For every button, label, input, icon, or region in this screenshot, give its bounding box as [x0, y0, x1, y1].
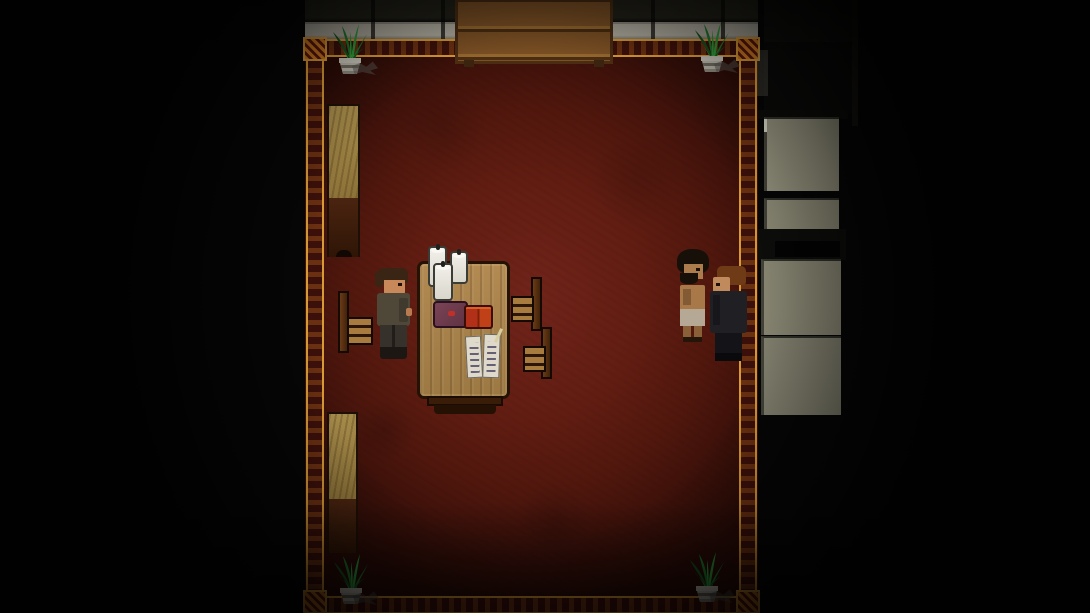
chair-left-seat[interactable] [347, 317, 373, 345]
shelf-board [458, 54, 610, 60]
room-border-left [306, 39, 324, 613]
bookshelf-row-upper [462, 3, 606, 26]
wall-cabinet-upper[interactable] [327, 104, 360, 257]
npc-waist-cloth [680, 309, 705, 326]
player-character[interactable] [375, 268, 413, 360]
shelf-leg [464, 60, 474, 67]
chair-right-lower-seat[interactable] [523, 346, 546, 372]
red-tome-pair[interactable] [464, 305, 493, 329]
panel-highlight [764, 119, 767, 132]
npc-feet [683, 337, 702, 342]
candle-wick [457, 249, 461, 255]
side-room-wall-lower [764, 42, 856, 114]
npc-bare-torso [680, 285, 705, 311]
candle-wick [441, 261, 445, 267]
npc-dark-coat [710, 291, 747, 333]
wall-cabinet-lower[interactable] [327, 412, 358, 553]
npc-beard [680, 273, 698, 284]
side-room-panel-4 [761, 336, 841, 415]
dark-coat-npc[interactable] [710, 266, 748, 362]
cabinet-foot-notch [336, 250, 352, 257]
doorway-light-sliver [757, 50, 768, 96]
side-room-dark-recess [775, 241, 840, 257]
border-corner-bottom-right [736, 590, 760, 613]
border-corner-top-left [303, 37, 327, 61]
shelf-leg [594, 60, 604, 67]
cabinet-wood-top [329, 414, 356, 499]
npc-legs [715, 333, 742, 353]
cabinet-wood-bottom [329, 198, 358, 257]
cabinet-wood-top [329, 106, 358, 198]
purple-book[interactable] [433, 301, 468, 328]
player-boots [380, 347, 407, 359]
cabinet-wood-bottom [329, 499, 356, 553]
chair-right-upper-seat[interactable] [511, 296, 534, 322]
bookshelf[interactable] [455, 0, 613, 64]
side-room-panel-3 [761, 259, 841, 335]
manuscript-pages[interactable] [466, 333, 504, 381]
shirtless-npc[interactable] [677, 249, 710, 342]
side-room-panel-1 [764, 117, 839, 191]
npc-shoes [715, 353, 742, 361]
player-hand [406, 308, 412, 316]
bookshelf-row-lower [462, 32, 606, 54]
table-foot [434, 405, 496, 414]
manuscript-page-right [482, 334, 501, 379]
player-legs [380, 325, 407, 348]
candle-wick [436, 244, 440, 250]
manuscript-page-left [465, 336, 483, 379]
player-hair-fringe [384, 275, 405, 280]
side-room-wall-upper [764, 0, 856, 42]
side-room-panel-2 [764, 198, 839, 229]
candle-3[interactable] [433, 263, 453, 301]
game-viewport[interactable] [0, 0, 1090, 613]
side-room-divider [852, 0, 858, 126]
border-corner-bottom-left [303, 590, 327, 613]
